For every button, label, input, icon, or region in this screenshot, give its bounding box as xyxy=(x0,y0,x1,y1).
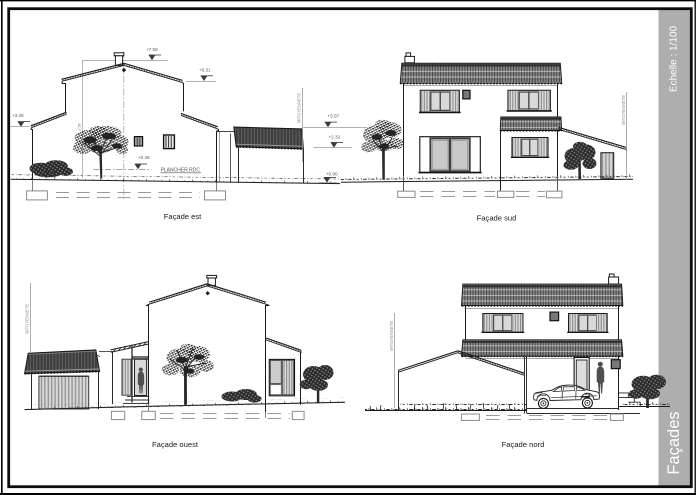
svg-text:Façade sud: Façade sud xyxy=(477,214,517,223)
svg-text:+6.31: +6.31 xyxy=(199,68,211,73)
svg-text:2.58: 2.58 xyxy=(78,124,82,131)
svg-text:Echelle : 1/100: Echelle : 1/100 xyxy=(669,25,680,92)
svg-text:+2.32: +2.32 xyxy=(329,135,341,140)
svg-text:+3.35: +3.35 xyxy=(12,113,24,118)
svg-text:MITOYENNETE: MITOYENNETE xyxy=(296,93,301,123)
svg-text:MITOYENNETE: MITOYENNETE xyxy=(621,95,626,125)
svg-text:MITOYENNETE: MITOYENNETE xyxy=(24,304,29,334)
svg-text:PLANCHER RDC: PLANCHER RDC xyxy=(161,167,201,173)
svg-text:Façade ouest: Façade ouest xyxy=(152,440,199,449)
svg-text:Façades: Façades xyxy=(665,411,683,474)
svg-text:+0.46: +0.46 xyxy=(138,155,150,160)
svg-text:+3.07: +3.07 xyxy=(328,114,340,119)
svg-text:MITOYENNETE: MITOYENNETE xyxy=(389,321,394,351)
svg-text:+7.58: +7.58 xyxy=(146,47,158,52)
svg-text:+0.00: +0.00 xyxy=(326,172,338,177)
svg-text:Façade est: Façade est xyxy=(164,212,202,221)
svg-text:Façade nord: Façade nord xyxy=(502,440,545,449)
